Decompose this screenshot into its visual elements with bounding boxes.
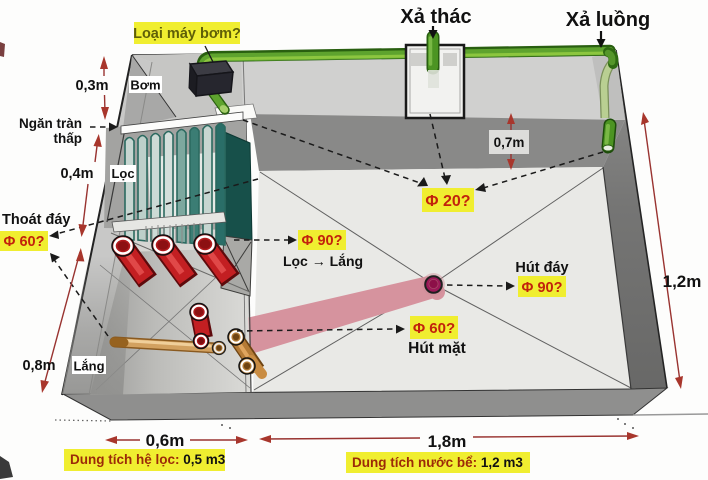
svg-text:Hút mặt: Hút mặt xyxy=(408,340,466,357)
svg-text:1,2m: 1,2m xyxy=(663,272,702,291)
svg-text:Φ 90?: Φ 90? xyxy=(302,233,343,249)
svg-text:Lọc: Lọc xyxy=(111,166,134,181)
svg-text:thấp: thấp xyxy=(54,131,83,146)
svg-text:Hút đáy: Hút đáy xyxy=(515,260,568,276)
svg-text:Ngăn tràn: Ngăn tràn xyxy=(19,116,82,131)
svg-text:Thoát đáy: Thoát đáy xyxy=(2,212,70,228)
svg-text:0,7m: 0,7m xyxy=(494,135,525,150)
svg-text:0,4m: 0,4m xyxy=(60,166,93,182)
svg-text:Φ 60?: Φ 60? xyxy=(413,320,455,337)
svg-text:Lọc → Lắng: Lọc → Lắng xyxy=(283,252,363,269)
svg-text:Bơm: Bơm xyxy=(130,78,160,93)
svg-text:Φ 90?: Φ 90? xyxy=(522,280,563,296)
svg-text:Dung tích nước bể: 1,2 m3: Dung tích nước bể: 1,2 m3 xyxy=(352,455,523,470)
svg-text:Xả luồng: Xả luồng xyxy=(566,9,650,31)
svg-text:0,3m: 0,3m xyxy=(75,78,108,94)
svg-text:0,8m: 0,8m xyxy=(22,358,55,374)
svg-text:Φ 20?: Φ 20? xyxy=(425,193,470,210)
svg-text:Loại máy bơm?: Loại máy bơm? xyxy=(133,26,241,42)
svg-text:Lắng: Lắng xyxy=(73,359,104,374)
svg-text:Φ 60?: Φ 60? xyxy=(4,234,45,250)
svg-text:0,6m: 0,6m xyxy=(146,431,185,450)
svg-text:Xả thác: Xả thác xyxy=(400,6,471,28)
svg-text:1,8m: 1,8m xyxy=(428,432,467,451)
svg-text:Dung tích hệ lọc: 0,5 m3: Dung tích hệ lọc: 0,5 m3 xyxy=(70,452,226,467)
